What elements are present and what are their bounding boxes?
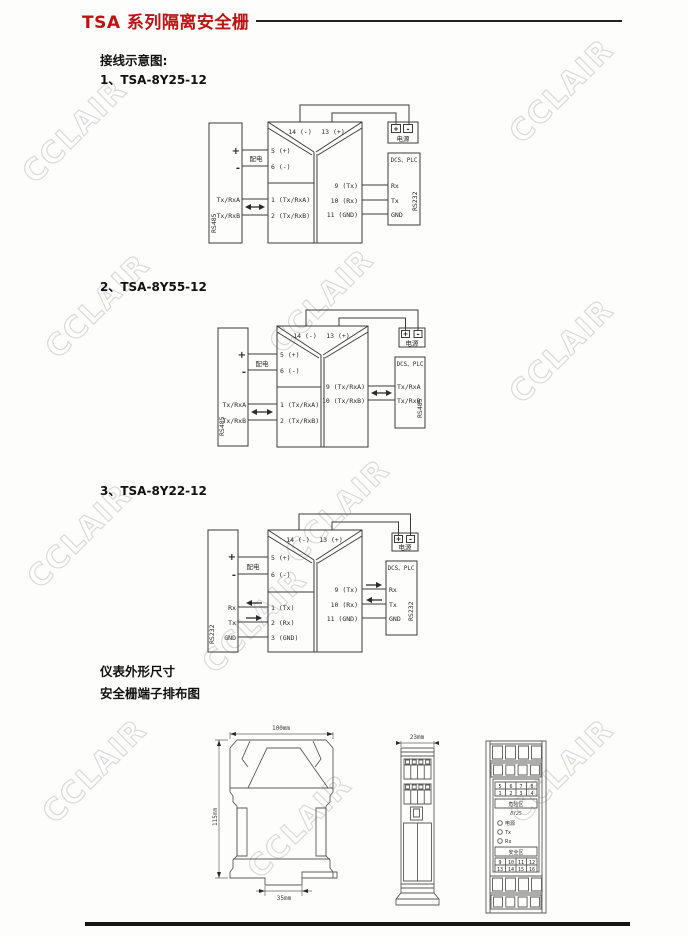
terminal-number: 10 [508,860,514,866]
dimensions-heading: 仪表外形尺寸 [100,661,175,680]
terminal-label: 14 (-) [293,332,316,340]
width-dimension-label: 100mm [272,725,290,732]
dcs-plc-title: DCS、PLC [391,158,418,164]
terminal-label: 13 (+) [319,536,342,544]
led-label: Rx [505,839,511,845]
bus-label: RS232 [411,191,419,211]
plus-sign: + [396,535,401,544]
terminal-number: 4 [530,791,533,797]
terminal-label: 5 (+) [280,351,300,359]
plus-sign: + [238,350,246,361]
terminal-label: 14 (-) [286,536,309,544]
power-wires [300,105,409,124]
plus-sign: + [403,330,408,339]
minus-sign: - [416,330,421,339]
power-supply-label: 电源 [406,339,420,348]
terminal-number: 7 [519,784,522,790]
terminal-label: Tx [391,197,399,205]
diagrams-canvas: RS485 Tx/RxA Tx/RxB + - 配电 14 (-) 13 (+)… [0,0,688,936]
minus-sign: - [232,570,236,581]
plus-sign: + [232,146,240,157]
power-wires [299,514,411,535]
terminal-number: 9 [498,860,501,866]
terminal-row [490,876,542,893]
terminal-label: 13 (+) [321,128,344,136]
terminal-label: Tx [389,601,397,609]
terminal-label: Tx/RxB [217,212,241,220]
wiring-diagram-tsa-8y22: RS232 Rx Tx GND + - 配电 14 (-) 13 (+) 5 (… [208,514,418,652]
terminal-label: 5 (+) [271,147,291,155]
terminal-number: 8 [530,784,533,790]
height-dimension-label: 115mm [212,808,219,826]
power-wires [306,310,418,330]
terminal-layout-heading: 安全栅端子排布图 [100,683,200,702]
model-label: 8Y25 [510,811,522,817]
power-led [498,821,503,826]
terminal-number: 5 [498,784,501,790]
power-feed-label: 配电 [250,154,264,163]
terminal-row [490,744,542,761]
power-feed-label: 配电 [256,359,270,368]
tx-led [498,830,503,835]
terminal-label: 9 (Tx/RxA) [326,383,365,391]
power-supply-label: 电源 [399,543,413,552]
hazard-zone-label: 危险区 [508,801,523,808]
terminal-label: 1 (Tx/RxA) [280,401,319,409]
footer-rule [85,922,630,926]
vent-slots-right [316,808,326,856]
terminal-label: 10 (Tx/RxB) [322,397,365,405]
terminal-number: 16 [529,867,535,873]
card-outline [486,741,546,913]
terminal-label: 9 (Tx) [335,182,358,190]
width-dimension-label: 23mm [410,734,425,741]
dcs-plc-box [386,561,417,635]
front-view-drawing: 23mm [396,734,439,905]
title-rule [256,20,622,22]
terminal-label: Rx [391,182,399,190]
rx-led [498,839,503,844]
minus-sign: - [408,535,413,544]
terminal-label: GND [391,211,403,219]
terminal-label: 1 (Tx) [271,604,294,612]
rail-dimension-label: 35mm [277,895,292,902]
terminal-number: 11 [518,860,524,866]
terminal-number: 12 [529,860,535,866]
terminal-label: Tx/RxB [223,417,247,425]
terminal-label: Tx [228,619,236,627]
minus-sign: - [406,125,411,134]
terminal-label: 6 (-) [271,571,291,579]
power-supply-label: 电源 [397,134,411,143]
bus-label: RS232 [407,601,415,621]
terminal-label: 3 (GND) [271,634,298,642]
safe-zone-label: 安全区 [508,849,523,856]
minus-sign: - [236,163,240,174]
terminal-label: 2 (Tx/RxB) [280,417,319,425]
terminal-label: 11 (GND) [327,615,358,623]
wires [362,185,388,214]
terminal-number: 6 [509,784,512,790]
terminal-label: GND [389,615,401,623]
terminal-layout-card: 5 6 7 8 1 2 3 4 危险区 8Y25 电源 Tx Rx 安全区 9 [486,741,546,913]
wires [362,589,386,618]
model-item-1: 1、TSA-8Y25-12 [100,71,207,88]
terminal-number: 15 [518,867,524,873]
terminal-label: 10 (Rx) [331,197,358,205]
terminal-number: 1 [498,791,501,797]
terminal-label: 14 (-) [288,128,311,136]
terminal-label: 6 (-) [280,367,300,375]
led-label: Tx [504,830,511,836]
bus-label: RS485 [416,398,424,418]
dcs-plc-title: DCS、PLC [388,566,415,572]
terminal-label: Tx/RxA [217,196,241,204]
terminal-label: 6 (-) [271,163,291,171]
terminal-label: 2 (Tx/RxB) [271,212,310,220]
vent-slots-left [237,808,247,856]
terminal-label: 11 (GND) [327,211,358,219]
terminal-label: Rx [228,604,236,612]
din-rail-section [302,872,337,878]
power-feed-label: 配电 [247,562,261,571]
terminal-label: 2 (Rx) [271,619,294,627]
dcs-plc-title: DCS、PLC [397,362,424,368]
wiring-diagram-tsa-8y25: RS485 Tx/RxA Tx/RxB + - 配电 14 (-) 13 (+)… [209,105,420,243]
terminal-number: 2 [509,791,512,797]
plus-sign: + [228,552,236,563]
terminal-label: Rx [389,586,397,594]
bus-label: RS232 [208,624,216,644]
terminal-label: GND [224,634,236,642]
model-item-2: 2、TSA-8Y55-12 [100,278,207,295]
wiring-section-heading: 接线示意图: [100,50,168,69]
model-item-3: 3、TSA-8Y22-12 [100,482,207,499]
terminal-label: 1 (Tx/RxA) [271,196,310,204]
plus-sign: + [394,125,399,134]
module-inner-lines [230,741,333,859]
wiring-diagram-tsa-8y55: RS485 Tx/RxA Tx/RxB + - 配电 14 (-) 13 (+)… [218,310,425,447]
page-title: TSA 系列隔离安全栅 [82,8,249,33]
terminal-number: 14 [508,867,514,873]
terminal-label: Tx/RxA [223,401,247,409]
terminal-label: 10 (Rx) [331,601,358,609]
document-page: CCLAIR CCLAIR CCLAIR CCLAIR CCLAIR CCLAI… [0,0,688,936]
led-label: 电源 [505,820,515,827]
base-flange [396,893,439,905]
terminal-label: Tx/RxA [397,383,421,391]
terminal-label: 9 (Tx) [335,586,358,594]
minus-sign: - [242,367,246,378]
terminal-label: 13 (+) [326,332,349,340]
module-profile [230,740,333,885]
terminal-number: 13 [497,867,503,873]
outline-drawing-side-view: 100mm 115mm 35mm [212,725,337,902]
terminal-label: 5 (+) [271,554,291,562]
terminal-number: 3 [519,791,522,797]
